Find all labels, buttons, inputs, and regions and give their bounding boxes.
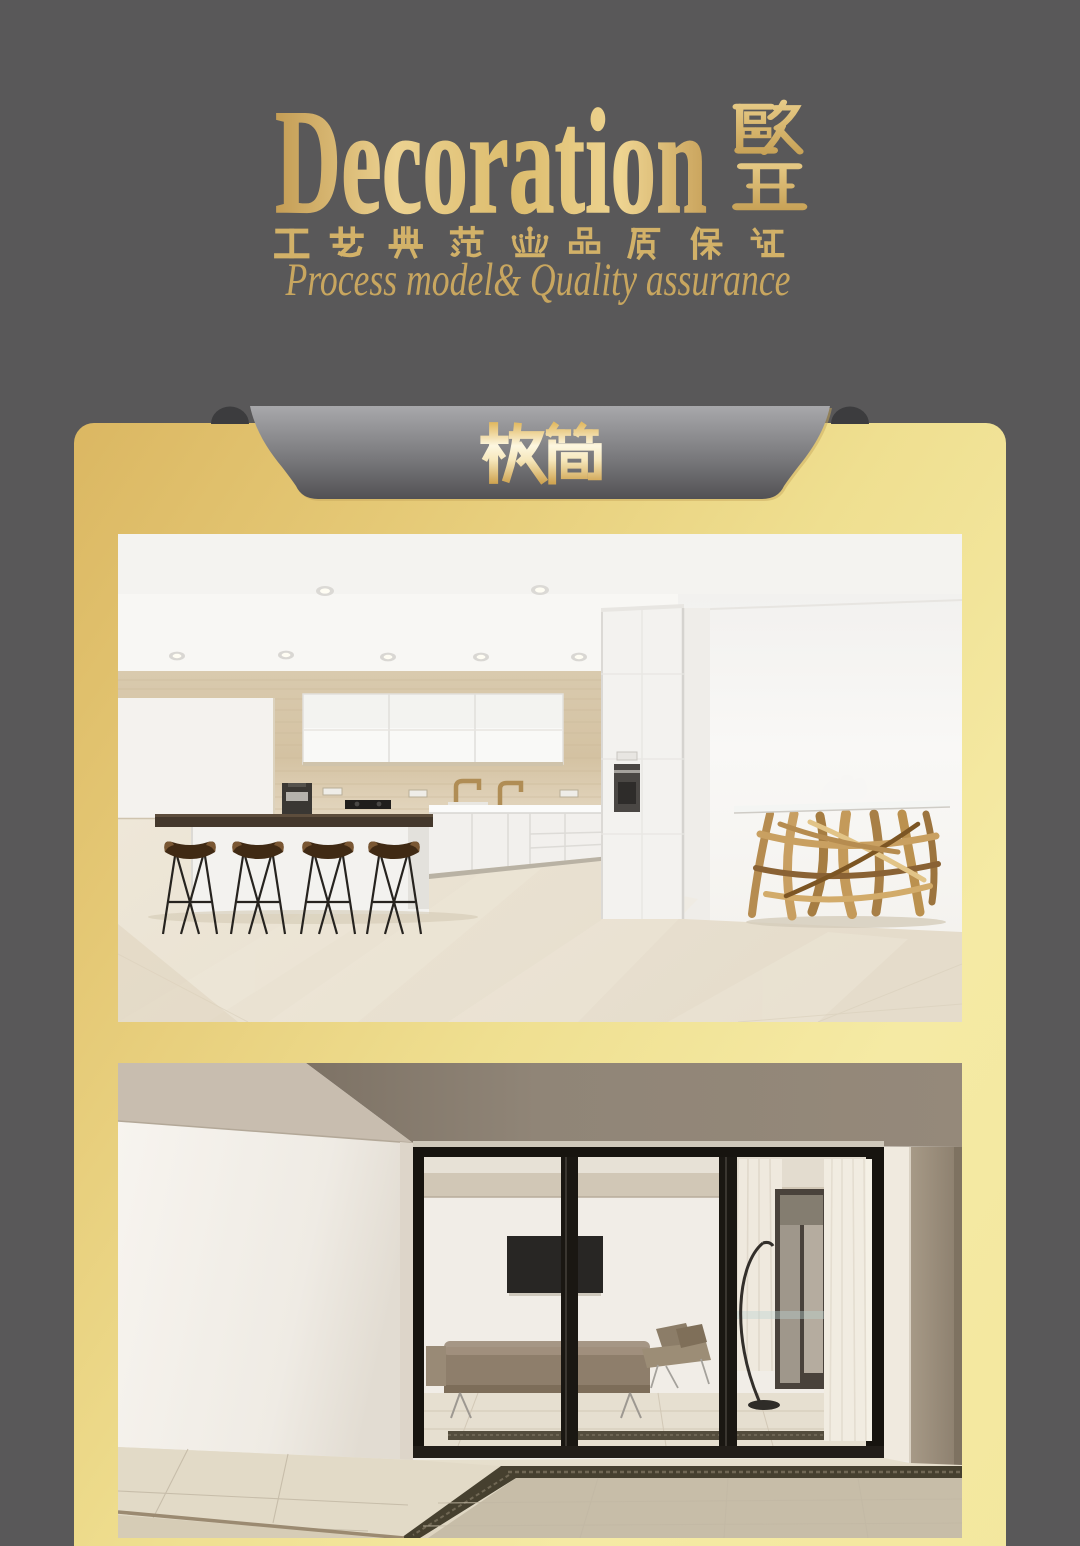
svg-text:Process model& Quality assuran: Process model& Quality assurance	[285, 254, 791, 306]
svg-text:Decoration: Decoration	[275, 79, 707, 245]
